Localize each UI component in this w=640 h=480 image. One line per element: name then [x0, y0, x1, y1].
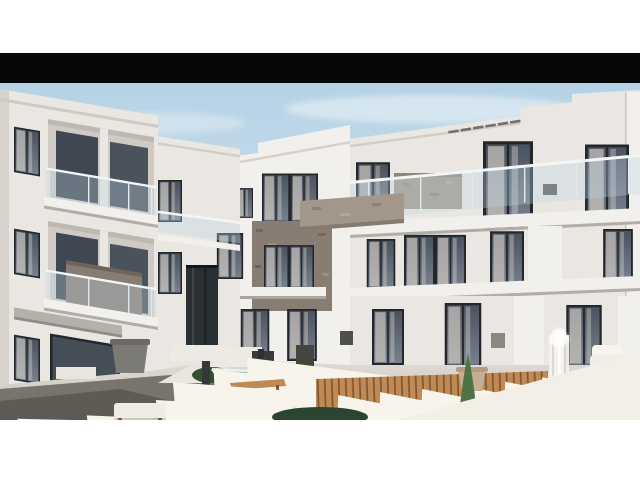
mid-window	[603, 229, 633, 281]
ground-door	[372, 309, 404, 365]
property-render-photo	[0, 53, 640, 420]
ground-door	[445, 303, 482, 367]
stone-framed-window	[289, 245, 314, 289]
window	[14, 127, 40, 177]
render-scene	[0, 83, 640, 420]
mid-window	[435, 235, 466, 289]
window	[14, 335, 40, 385]
ground-column	[514, 296, 544, 366]
mid-window	[404, 235, 435, 289]
dark-pot	[296, 345, 314, 367]
window	[14, 229, 40, 279]
mid-window	[367, 239, 396, 289]
page-background	[0, 0, 640, 480]
window	[158, 252, 182, 294]
outdoor-coffee-table	[114, 403, 166, 420]
basalt-feature-pillar	[186, 265, 218, 357]
letterbox-bar	[0, 53, 640, 83]
upper-window	[262, 174, 290, 223]
stone-framed-window	[264, 245, 289, 289]
